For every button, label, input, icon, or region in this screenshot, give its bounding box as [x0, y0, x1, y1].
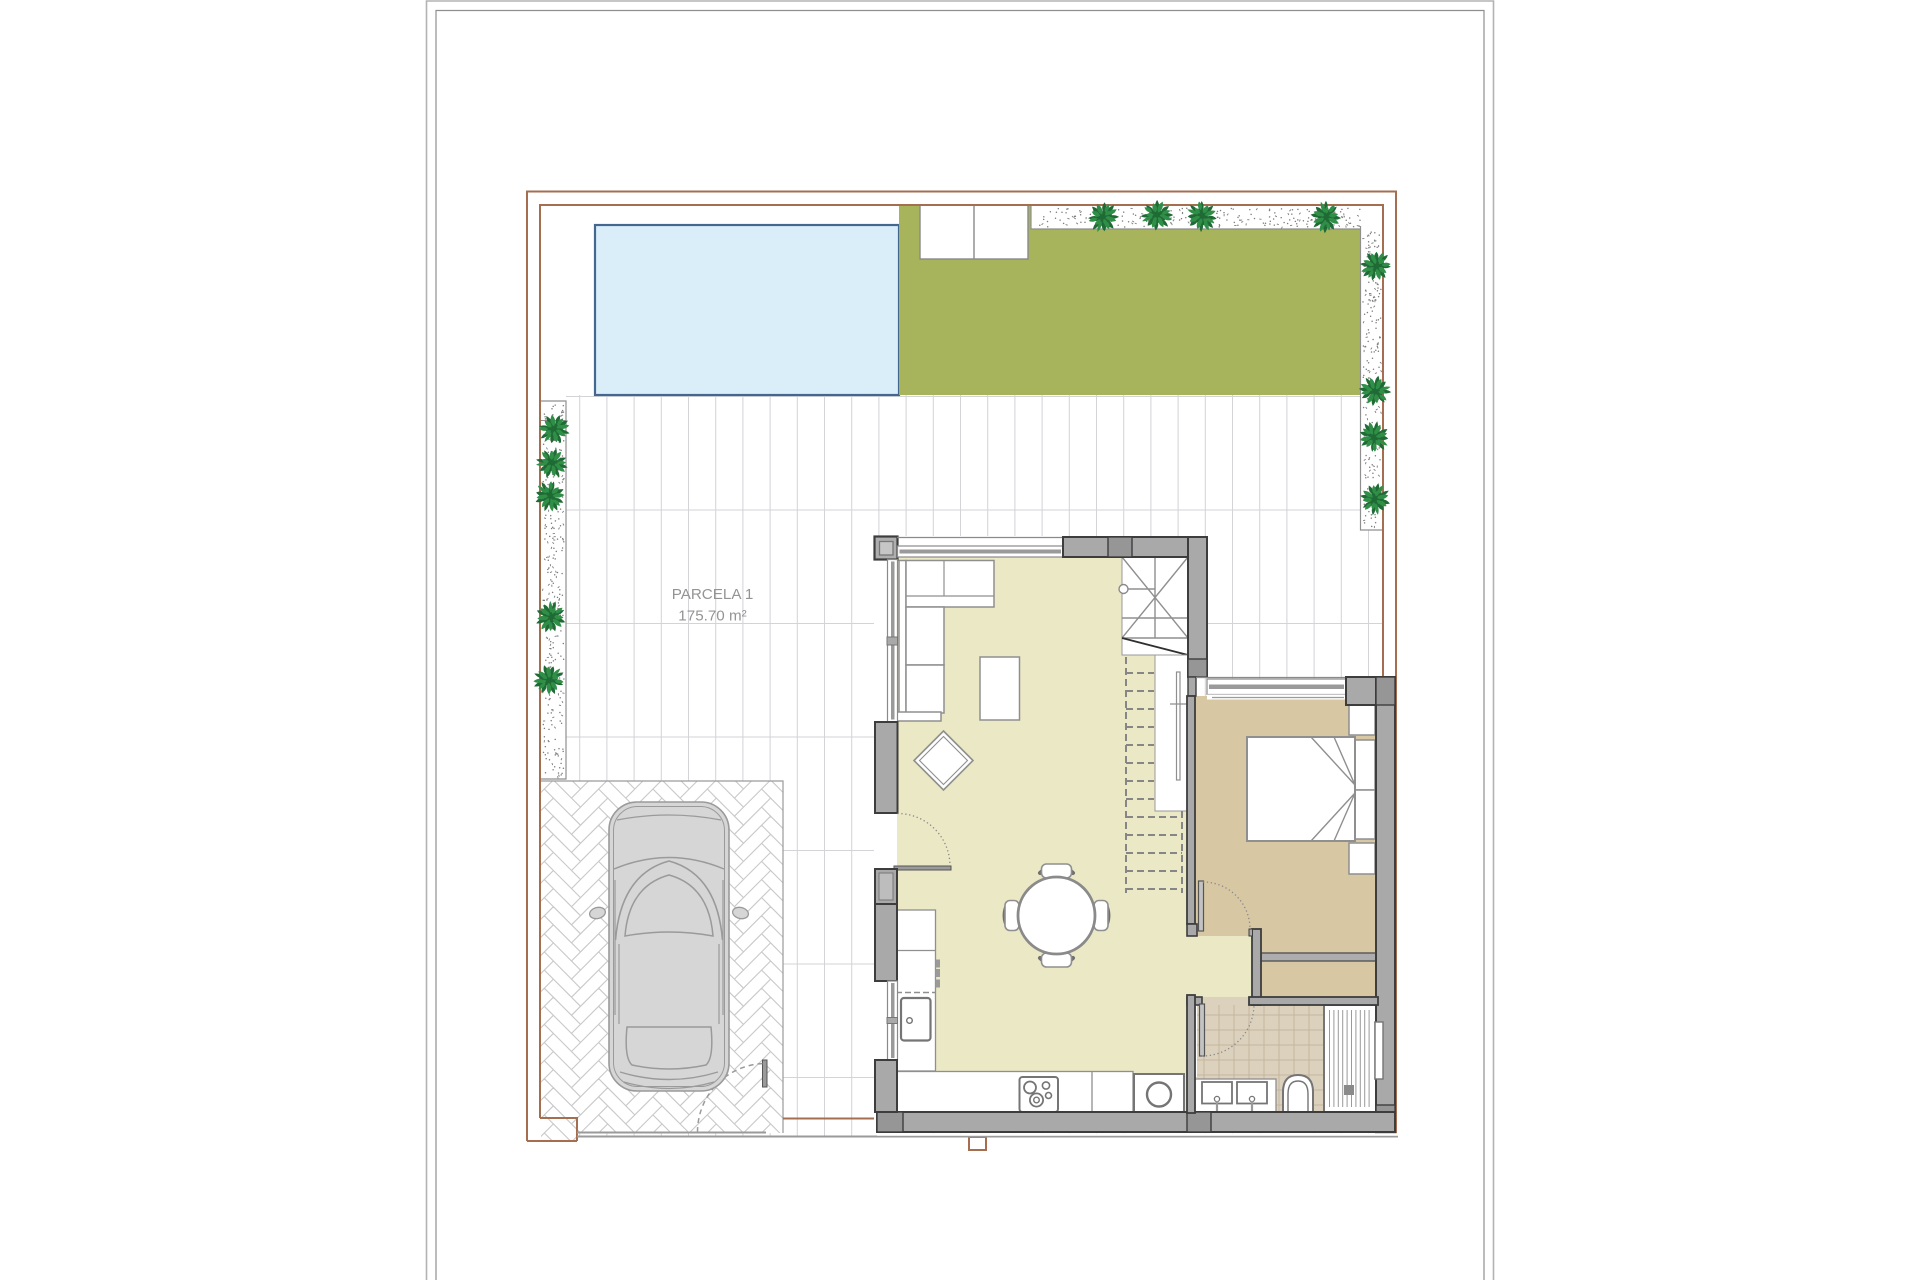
- svg-text:175.70 m²: 175.70 m²: [678, 608, 746, 625]
- svg-text:PARCELA 1: PARCELA 1: [672, 586, 754, 603]
